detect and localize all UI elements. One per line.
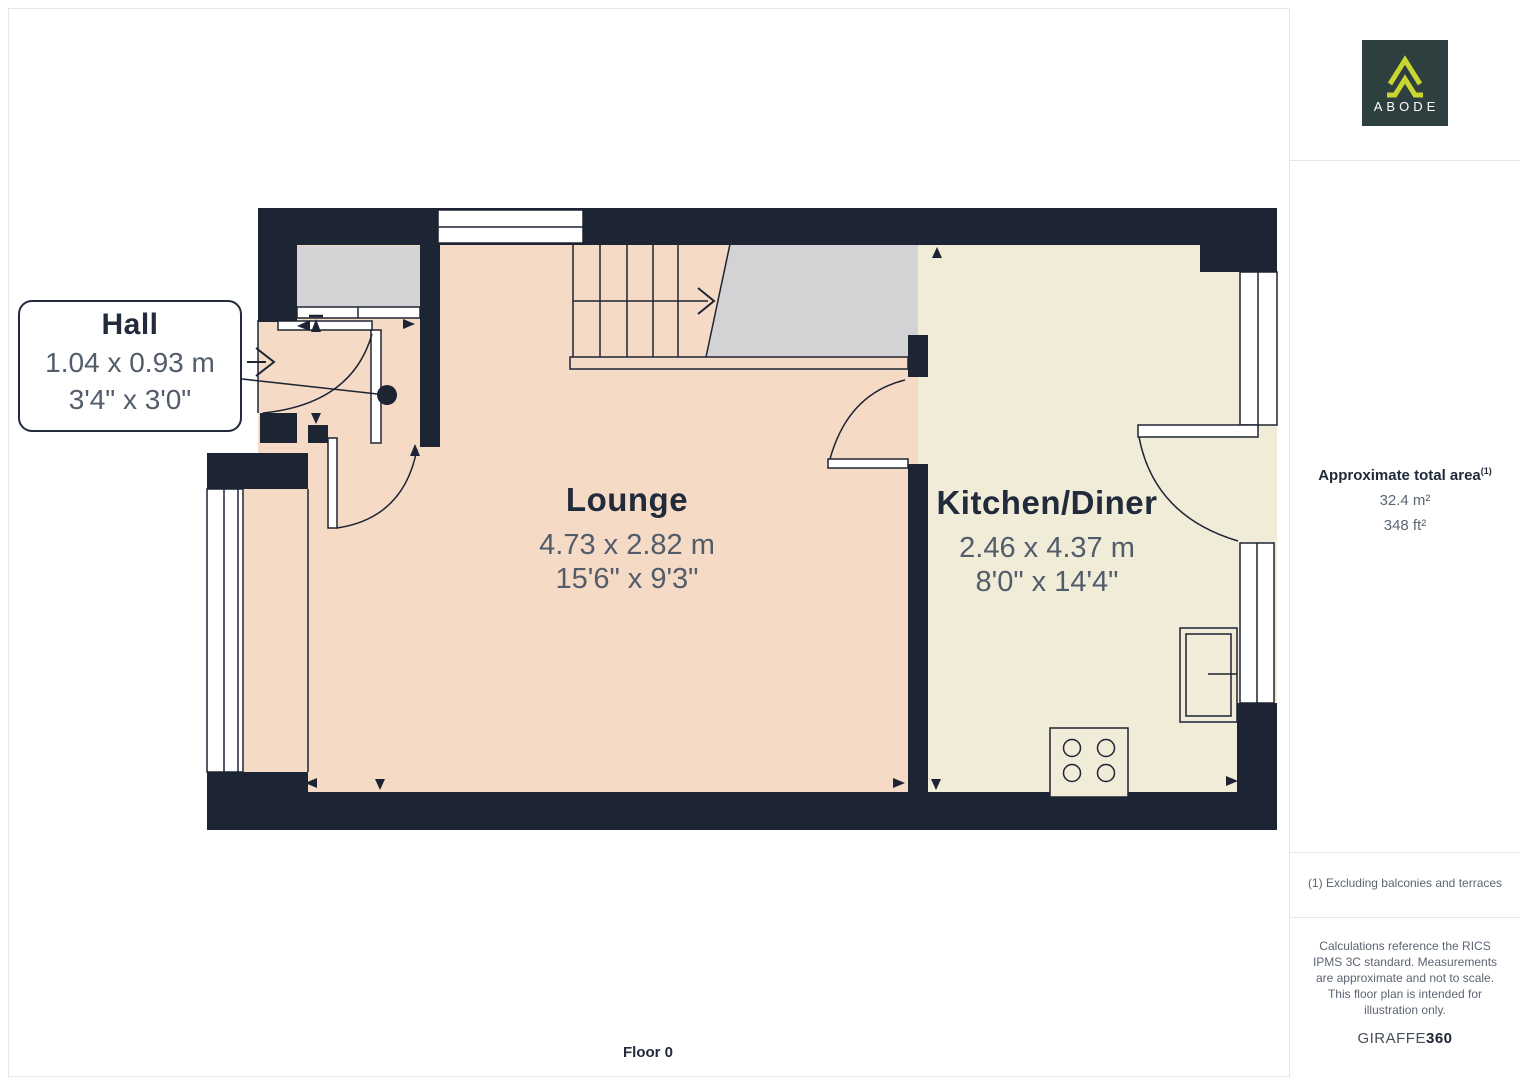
room-name-hall: Hall xyxy=(20,306,240,344)
giraffe360-brand: GIRAFFE360 xyxy=(1290,1030,1520,1047)
area-value-ft2: 348 ft² xyxy=(1290,517,1520,534)
area-value-m2: 32.4 m² xyxy=(1290,492,1520,509)
sidebar-divider xyxy=(1290,917,1520,918)
kitchen-entry-door-leaf xyxy=(1138,425,1258,437)
area-footnote-ref: (1) xyxy=(1481,466,1492,476)
floor-label: Floor 0 xyxy=(548,1044,748,1061)
hall-callout: Hall 1.04 x 0.93 m 3'4" x 3'0" xyxy=(18,300,242,432)
sidebar-divider xyxy=(1290,160,1520,161)
room-dims-m-hall: 1.04 x 0.93 m xyxy=(20,344,240,381)
sidebar-divider xyxy=(1290,852,1520,853)
lounge-kitchen-door-leaf xyxy=(828,459,908,468)
area-title: Approximate total area(1) xyxy=(1290,466,1520,484)
front-door-leaf-open xyxy=(371,330,381,443)
counter-unit-icon xyxy=(1180,628,1237,722)
hall-closet xyxy=(297,246,420,307)
sidebar: ABODE Approximate total area(1) 32.4 m² … xyxy=(1289,8,1519,1078)
stove-icon xyxy=(1050,728,1128,797)
abode-logo-mark-icon xyxy=(1362,48,1448,98)
room-dims-ft-hall: 3'4" x 3'0" xyxy=(20,381,240,418)
abode-logo: ABODE xyxy=(1362,40,1448,126)
brand-bold: 360 xyxy=(1426,1030,1453,1047)
stair-landing xyxy=(706,244,918,358)
disclaimer-text: Calculations reference the RICS IPMS 3C … xyxy=(1311,938,1499,1018)
leader-dot xyxy=(377,385,397,405)
front-door-leaf xyxy=(278,321,372,330)
abode-logo-text: ABODE xyxy=(1362,99,1448,114)
total-area-block: Approximate total area(1) 32.4 m² 348 ft… xyxy=(1290,466,1520,534)
floorplan-canvas xyxy=(0,0,1290,1080)
floor-fills xyxy=(243,243,1277,797)
brand-regular: GIRAFFE xyxy=(1357,1030,1426,1047)
hall-lounge-door-leaf xyxy=(328,438,337,528)
area-footnote: (1) Excluding balconies and terraces xyxy=(1300,876,1510,890)
